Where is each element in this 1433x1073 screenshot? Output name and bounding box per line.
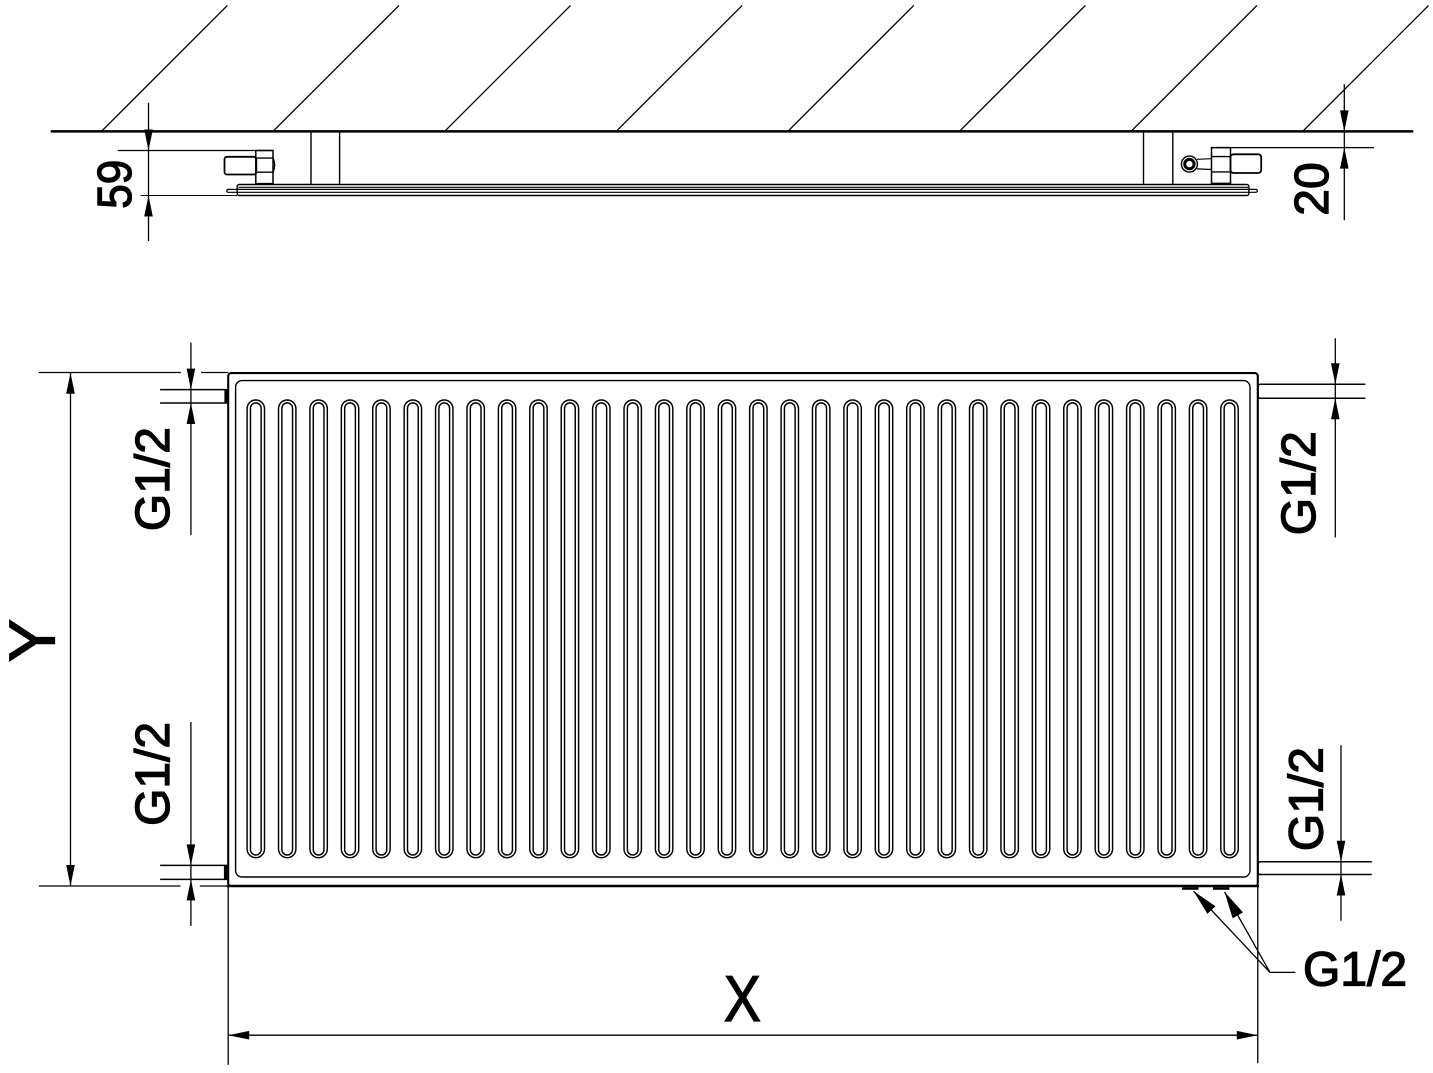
svg-text:G1/2: G1/2	[127, 427, 180, 531]
svg-text:X: X	[724, 962, 761, 1035]
svg-text:G1/2: G1/2	[1280, 747, 1333, 851]
svg-text:59: 59	[89, 160, 142, 209]
svg-text:G1/2: G1/2	[1303, 943, 1407, 996]
svg-text:Y: Y	[0, 619, 68, 662]
svg-text:20: 20	[1286, 162, 1339, 215]
svg-text:G1/2: G1/2	[127, 722, 180, 826]
svg-text:G1/2: G1/2	[1273, 431, 1326, 535]
